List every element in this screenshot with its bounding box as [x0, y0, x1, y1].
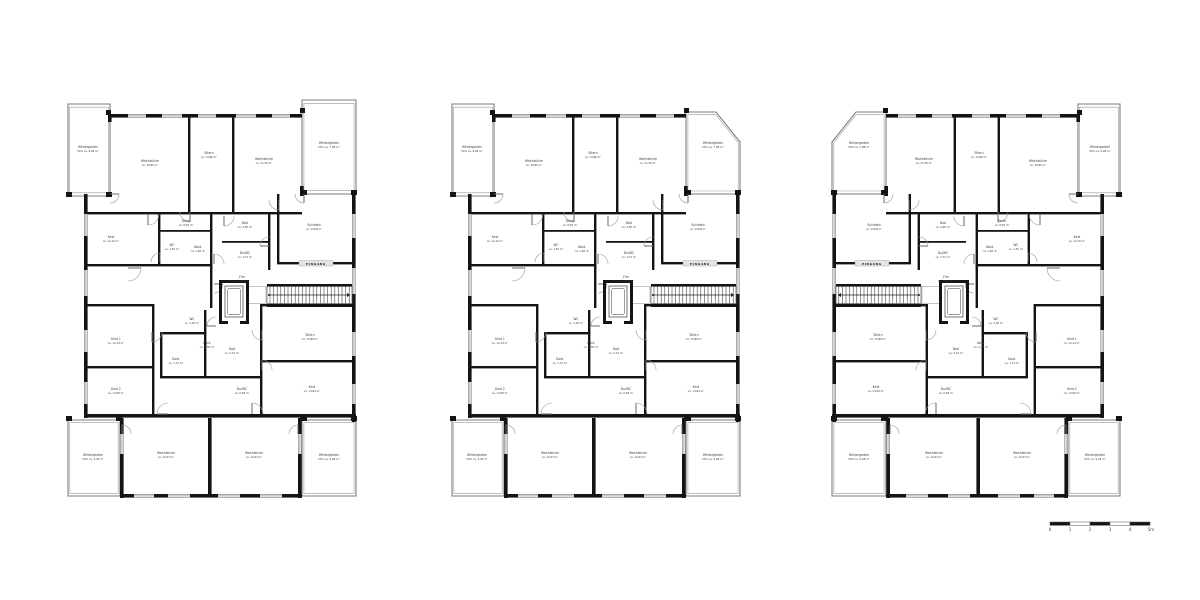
svg-text:Schlafen: Schlafen	[867, 223, 880, 227]
svg-text:Gard.: Gard.	[172, 357, 180, 361]
room-label-abstell-1: Abst. ca. 1,98 m²	[191, 245, 206, 253]
floor-plan-middle: Wintergarten 50% ca. 9,68 m² Wohnküche c…	[448, 98, 744, 502]
svg-text:Du/WC: Du/WC	[941, 387, 952, 391]
svg-text:Kind 1: Kind 1	[1067, 337, 1077, 341]
svg-text:ca. 7,13 m²: ca. 7,13 m²	[169, 361, 184, 365]
svg-text:Du/WC: Du/WC	[240, 251, 251, 255]
svg-text:50% ca. 7,88 m²: 50% ca. 7,88 m²	[848, 145, 869, 149]
svg-text:ca. 1,98 m²: ca. 1,98 m²	[575, 249, 590, 253]
room-label-dusche-wc-1: Du/WC ca. 3,74 m²	[936, 251, 951, 259]
floor-plan-middle-drawing: Wintergarten 50% ca. 9,68 m² Wohnküche c…	[448, 98, 744, 502]
svg-text:Du/WC: Du/WC	[624, 251, 635, 255]
room-label-diele-1: Diele ca. 8,95 m²	[995, 219, 1010, 227]
svg-text:Eltern: Eltern	[588, 151, 597, 155]
svg-text:50% ca. 9,68 m²: 50% ca. 9,68 m²	[77, 149, 98, 153]
svg-text:Abst.: Abst.	[986, 245, 994, 249]
svg-text:ca. 24,33 m²: ca. 24,33 m²	[542, 455, 558, 459]
room-label-dusche-wc-1: Du/WC ca. 3,74 m²	[238, 251, 253, 259]
svg-text:Kind: Kind	[1074, 235, 1081, 239]
svg-text:Wintergarten: Wintergarten	[462, 145, 482, 149]
svg-text:ca. 14,06 m²: ca. 14,06 m²	[306, 227, 322, 231]
svg-text:Wintergarten: Wintergarten	[319, 141, 339, 145]
svg-text:50% ca. 9,26 m²: 50% ca. 9,26 m²	[1084, 457, 1105, 461]
svg-text:Gard.: Gard.	[556, 357, 564, 361]
entrance-label: EINGANG	[855, 261, 889, 267]
svg-text:ca. 12,14 m²: ca. 12,14 m²	[108, 341, 124, 345]
svg-text:ca. 3,74 m²: ca. 3,74 m²	[622, 255, 637, 259]
room-label-dusche-wc-2: Du/WC ca. 6,28 m²	[619, 387, 634, 395]
room-label-eltern-2: Eltern ca. 13,88 m²	[686, 333, 702, 341]
svg-text:Wohnküche: Wohnküche	[255, 157, 273, 161]
room-label-kind-1: Kind 1 ca. 12,14 m²	[492, 337, 508, 345]
svg-text:3: 3	[1109, 527, 1112, 532]
svg-text:ca. 13,68 m²: ca. 13,68 m²	[492, 391, 508, 395]
svg-text:50% ca. 9,68 m²: 50% ca. 9,68 m²	[1089, 149, 1110, 153]
room-label-kind-1: Kind 1 ca. 12,14 m²	[108, 337, 124, 345]
room-label-bad-2: Bad ca. 5,23 m²	[609, 347, 624, 355]
svg-text:Wintergarten: Wintergarten	[467, 453, 487, 457]
svg-text:ca. 13,88 m²: ca. 13,88 m²	[870, 337, 886, 341]
svg-text:Bad: Bad	[229, 347, 235, 351]
room-label-eltern-2: Eltern ca. 13,88 m²	[870, 333, 886, 341]
svg-text:ca. 21,36 m²: ca. 21,36 m²	[640, 161, 656, 165]
svg-text:ca. 8,95 m²: ca. 8,95 m²	[179, 223, 194, 227]
room-label-bad-1: Bad ca. 4,85 m²	[936, 221, 951, 229]
room-label-wohnkueche-1: Wohnküche ca. 20,86 m²	[1029, 159, 1047, 167]
svg-text:Bad: Bad	[626, 221, 632, 225]
room-label-kind-l: Kind ca. 12,16 m²	[103, 235, 119, 243]
room-label-schlafen: Schlafen ca. 14,06 m²	[866, 223, 882, 231]
svg-text:Wohnküche: Wohnküche	[141, 159, 159, 163]
svg-text:WC: WC	[553, 243, 558, 247]
room-label-wohnzimmer: Wohnküche ca. 21,36 m²	[255, 157, 273, 165]
room-label-wc-2: WC ca. 2,28 m²	[569, 317, 584, 325]
svg-text:ca. 3,74 m²: ca. 3,74 m²	[238, 255, 253, 259]
svg-text:ca. 2,38 m²: ca. 2,38 m²	[584, 345, 599, 349]
svg-text:Abst.: Abst.	[203, 341, 211, 345]
room-label-wohnkueche-3: Wohnküche ca. 24,92 m²	[629, 451, 647, 459]
svg-text:Kind: Kind	[492, 235, 499, 239]
svg-text:Kind 2: Kind 2	[1067, 387, 1077, 391]
svg-text:Du/WC: Du/WC	[938, 251, 949, 255]
scale-bar-segments	[1050, 522, 1150, 525]
svg-text:Eltern: Eltern	[974, 151, 983, 155]
svg-text:ca. 14,86 m²: ca. 14,86 m²	[971, 155, 987, 159]
room-label-kind-l: Kind ca. 12,16 m²	[487, 235, 503, 243]
room-label-kind-3: Kind ca. 14,84 m²	[304, 385, 320, 393]
room-label-garderobe: Gard. ca. 7,13 m²	[1005, 357, 1020, 365]
room-label-eltern: Eltern ca. 14,86 m²	[971, 151, 987, 159]
svg-text:ca. 14,06 m²: ca. 14,06 m²	[690, 227, 706, 231]
floor-plan-right-drawing: Wintergarten 50% ca. 9,68 m² Wohnküche c…	[828, 98, 1124, 502]
floor-plan-sheet: { "page": { "background_color": "#ffffff…	[0, 0, 1200, 600]
svg-text:ca. 21,36 m²: ca. 21,36 m²	[916, 161, 932, 165]
svg-text:Kind: Kind	[309, 385, 316, 389]
room-label-wohnkueche-2: Wohnküche ca. 24,33 m²	[1013, 451, 1031, 459]
room-label-wohnkueche-2: Wohnküche ca. 24,33 m²	[157, 451, 175, 459]
room-label-bad-1: Bad ca. 4,85 m²	[238, 221, 253, 229]
svg-text:Wintergarten: Wintergarten	[703, 453, 723, 457]
svg-text:ca. 14,86 m²: ca. 14,86 m²	[585, 155, 601, 159]
svg-text:50% ca. 9,68 m²: 50% ca. 9,68 m²	[461, 149, 482, 153]
room-label-wohnkueche-2: Wohnküche ca. 24,33 m²	[541, 451, 559, 459]
room-label-wohnkueche-3: Wohnküche ca. 24,92 m²	[245, 451, 263, 459]
svg-text:Gard.: Gard.	[1008, 357, 1016, 361]
svg-text:ca. 12,16 m²: ca. 12,16 m²	[103, 239, 119, 243]
room-label-diele-1: Diele ca. 8,95 m²	[563, 219, 578, 227]
room-label-kind-3: Kind ca. 14,84 m²	[688, 385, 704, 393]
room-label-wohnkueche-3: Wohnküche ca. 24,92 m²	[925, 451, 943, 459]
svg-text:50% ca. 9,26 m²: 50% ca. 9,26 m²	[82, 457, 103, 461]
svg-text:ca. 14,84 m²: ca. 14,84 m²	[304, 389, 320, 393]
room-label-eltern: Eltern ca. 14,86 m²	[201, 151, 217, 159]
svg-text:ca. 2,38 m²: ca. 2,38 m²	[200, 345, 215, 349]
svg-text:Wintergarten: Wintergarten	[1090, 145, 1110, 149]
svg-text:WC: WC	[169, 243, 174, 247]
svg-text:ca. 7,13 m²: ca. 7,13 m²	[553, 361, 568, 365]
scale-bar: 0 1 2 3 4 5m	[1048, 516, 1156, 538]
svg-text:Du/WC: Du/WC	[237, 387, 248, 391]
entrance-label: EINGANG	[683, 261, 717, 267]
svg-text:ca. 3,74 m²: ca. 3,74 m²	[936, 255, 951, 259]
svg-text:ca. 14,84 m²: ca. 14,84 m²	[688, 389, 704, 393]
svg-text:ca. 20,02 m²: ca. 20,02 m²	[618, 279, 634, 283]
svg-text:ca. 2,38 m²: ca. 2,38 m²	[974, 345, 989, 349]
svg-text:50% ca. 7,88 m²: 50% ca. 7,88 m²	[318, 145, 339, 149]
room-label-kind-3: Kind ca. 14,84 m²	[868, 385, 884, 393]
svg-text:Wintergarten: Wintergarten	[319, 453, 339, 457]
svg-text:Diele: Diele	[182, 219, 190, 223]
svg-text:Wohnküche: Wohnküche	[1029, 159, 1047, 163]
svg-text:Abst.: Abst.	[194, 245, 202, 249]
room-label-schlafen: Schlafen ca. 14,06 m²	[306, 223, 322, 231]
room-label-kind-2: Kind 2 ca. 13,68 m²	[108, 387, 124, 395]
room-label-wc-1: WC ca. 1,55 m²	[1009, 243, 1024, 251]
svg-text:Kind: Kind	[693, 385, 700, 389]
svg-text:4: 4	[1129, 527, 1132, 532]
svg-text:ca. 8,95 m²: ca. 8,95 m²	[995, 223, 1010, 227]
svg-text:Kind 2: Kind 2	[495, 387, 505, 391]
svg-text:Wohnküche: Wohnküche	[245, 451, 263, 455]
svg-text:Bad: Bad	[242, 221, 248, 225]
svg-text:Wohnküche: Wohnküche	[541, 451, 559, 455]
svg-text:Diele: Diele	[998, 219, 1006, 223]
room-label-eltern-2: Eltern ca. 13,88 m²	[302, 333, 318, 341]
svg-text:ca. 24,92 m²: ca. 24,92 m²	[630, 455, 646, 459]
svg-text:0: 0	[1049, 527, 1052, 532]
svg-text:Eltern: Eltern	[873, 333, 882, 337]
svg-text:ca. 14,84 m²: ca. 14,84 m²	[868, 389, 884, 393]
svg-text:Schlafen: Schlafen	[307, 223, 320, 227]
svg-text:ca. 5,23 m²: ca. 5,23 m²	[225, 351, 240, 355]
svg-text:ca. 1,55 m²: ca. 1,55 m²	[165, 247, 180, 251]
svg-text:Wohnküche: Wohnküche	[525, 159, 543, 163]
svg-text:ca. 6,28 m²: ca. 6,28 m²	[235, 391, 250, 395]
svg-text:WC: WC	[573, 317, 578, 321]
svg-text:ca. 20,02 m²: ca. 20,02 m²	[938, 279, 954, 283]
svg-text:WC: WC	[189, 317, 194, 321]
svg-text:ca. 5,23 m²: ca. 5,23 m²	[949, 351, 964, 355]
svg-text:ca. 2,28 m²: ca. 2,28 m²	[569, 321, 584, 325]
room-label-wohnkueche-1: Wohnküche ca. 20,86 m²	[525, 159, 543, 167]
svg-text:ca. 1,98 m²: ca. 1,98 m²	[191, 249, 206, 253]
svg-text:Wintergarten: Wintergarten	[1085, 453, 1105, 457]
svg-text:Eltern: Eltern	[305, 333, 314, 337]
room-label-flur: Flur ca. 20,02 m²	[234, 275, 250, 283]
svg-text:Eltern: Eltern	[204, 151, 213, 155]
room-label-kind-2: Kind 2 ca. 13,68 m²	[1064, 387, 1080, 395]
svg-text:Wohnküche: Wohnküche	[157, 451, 175, 455]
room-label-schlafen: Schlafen ca. 14,06 m²	[690, 223, 706, 231]
svg-text:50% ca. 9,26 m²: 50% ca. 9,26 m²	[466, 457, 487, 461]
room-label-abstell-2: Abst. ca. 2,38 m²	[974, 341, 989, 349]
room-label-garderobe: Gard. ca. 7,13 m²	[169, 357, 184, 365]
svg-text:Kind 1: Kind 1	[495, 337, 505, 341]
svg-text:Wintergarten: Wintergarten	[849, 141, 869, 145]
svg-text:ca. 7,13 m²: ca. 7,13 m²	[1005, 361, 1020, 365]
svg-text:ca. 24,92 m²: ca. 24,92 m²	[246, 455, 262, 459]
svg-text:ca. 1,55 m²: ca. 1,55 m²	[1009, 247, 1024, 251]
svg-text:ca. 12,16 m²: ca. 12,16 m²	[1069, 239, 1085, 243]
svg-text:ca. 20,02 m²: ca. 20,02 m²	[234, 279, 250, 283]
svg-text:1: 1	[1069, 527, 1072, 532]
svg-text:Kind: Kind	[873, 385, 880, 389]
room-label-wc-1: WC ca. 1,55 m²	[549, 243, 564, 251]
svg-text:ca. 5,23 m²: ca. 5,23 m²	[609, 351, 624, 355]
svg-text:ca. 13,68 m²: ca. 13,68 m²	[1064, 391, 1080, 395]
svg-text:ca. 4,85 m²: ca. 4,85 m²	[622, 225, 637, 229]
floor-plan-right: Wintergarten 50% ca. 9,68 m² Wohnküche c…	[828, 98, 1124, 502]
room-label-wohnzimmer: Wohnküche ca. 21,36 m²	[639, 157, 657, 165]
svg-text:Kind 2: Kind 2	[111, 387, 121, 391]
svg-text:Bad: Bad	[953, 347, 959, 351]
svg-text:Abst.: Abst.	[977, 341, 985, 345]
room-label-eltern: Eltern ca. 14,86 m²	[585, 151, 601, 159]
svg-text:2: 2	[1089, 527, 1092, 532]
svg-text:Eltern: Eltern	[689, 333, 698, 337]
room-label-wohnzimmer: Wohnküche ca. 21,36 m²	[915, 157, 933, 165]
svg-text:Wintergarten: Wintergarten	[78, 145, 98, 149]
svg-text:ca. 21,36 m²: ca. 21,36 m²	[256, 161, 272, 165]
svg-text:Bad: Bad	[613, 347, 619, 351]
svg-text:ca. 6,28 m²: ca. 6,28 m²	[619, 391, 634, 395]
room-label-diele-1: Diele ca. 8,95 m²	[179, 219, 194, 227]
scale-bar-ticks: 0 1 2 3 4 5m	[1049, 527, 1155, 532]
room-label-flur: Flur ca. 20,02 m²	[618, 275, 634, 283]
svg-text:Wohnküche: Wohnküche	[1013, 451, 1031, 455]
room-label-kind-l: Kind ca. 12,16 m²	[1069, 235, 1085, 243]
entrance-label: EINGANG	[299, 261, 333, 267]
floor-plan-left: Wintergarten 50% ca. 9,68 m² Wohnküche c…	[64, 98, 360, 502]
room-label-wc-1: WC ca. 1,55 m²	[165, 243, 180, 251]
svg-text:ca. 2,28 m²: ca. 2,28 m²	[989, 321, 1004, 325]
svg-text:ca. 13,88 m²: ca. 13,88 m²	[686, 337, 702, 341]
svg-text:Kind 1: Kind 1	[111, 337, 121, 341]
svg-text:ca. 1,98 m²: ca. 1,98 m²	[983, 249, 998, 253]
room-label-wohnkueche-1: Wohnküche ca. 20,86 m²	[141, 159, 159, 167]
room-label-kind-2: Kind 2 ca. 13,68 m²	[492, 387, 508, 395]
svg-text:WC: WC	[1013, 243, 1018, 247]
svg-text:5m: 5m	[1148, 527, 1155, 532]
svg-text:Wohnküche: Wohnküche	[925, 451, 943, 455]
svg-text:50% ca. 9,68 m²: 50% ca. 9,68 m²	[318, 457, 339, 461]
svg-text:ca. 1,55 m²: ca. 1,55 m²	[549, 247, 564, 251]
room-label-dusche-wc-2: Du/WC ca. 6,28 m²	[235, 387, 250, 395]
room-label-wc-2: WC ca. 2,28 m²	[185, 317, 200, 325]
svg-text:ca. 6,28 m²: ca. 6,28 m²	[939, 391, 954, 395]
svg-text:Schlafen: Schlafen	[691, 223, 704, 227]
room-label-abstell-2: Abst. ca. 2,38 m²	[200, 341, 215, 349]
svg-text:Wohnküche: Wohnküche	[629, 451, 647, 455]
svg-text:Wintergarten: Wintergarten	[83, 453, 103, 457]
svg-text:ca. 14,86 m²: ca. 14,86 m²	[201, 155, 217, 159]
svg-text:ca. 13,68 m²: ca. 13,68 m²	[108, 391, 124, 395]
svg-text:ca. 24,92 m²: ca. 24,92 m²	[926, 455, 942, 459]
room-label-bad-1: Bad ca. 4,85 m²	[622, 221, 637, 229]
room-label-kind-1: Kind 1 ca. 12,14 m²	[1064, 337, 1080, 345]
svg-text:Wohnküche: Wohnküche	[915, 157, 933, 161]
svg-text:ca. 20,86 m²: ca. 20,86 m²	[142, 163, 158, 167]
svg-text:Diele: Diele	[566, 219, 574, 223]
svg-text:EINGANG: EINGANG	[306, 262, 326, 266]
svg-text:EINGANG: EINGANG	[690, 262, 710, 266]
svg-text:ca. 8,95 m²: ca. 8,95 m²	[563, 223, 578, 227]
svg-text:Wintergarten: Wintergarten	[703, 141, 723, 145]
svg-text:ca. 12,14 m²: ca. 12,14 m²	[1064, 341, 1080, 345]
svg-text:ca. 14,06 m²: ca. 14,06 m²	[866, 227, 882, 231]
floor-plan-left-drawing: Wintergarten 50% ca. 9,68 m² Wohnküche c…	[64, 98, 360, 502]
room-label-dusche-wc-1: Du/WC ca. 3,74 m²	[622, 251, 637, 259]
svg-text:Flur: Flur	[943, 275, 950, 279]
svg-text:ca. 12,14 m²: ca. 12,14 m²	[492, 341, 508, 345]
room-label-abstell-1: Abst. ca. 1,98 m²	[575, 245, 590, 253]
svg-text:ca. 20,86 m²: ca. 20,86 m²	[526, 163, 542, 167]
room-label-bad-2: Bad ca. 5,23 m²	[949, 347, 964, 355]
svg-text:Abst.: Abst.	[587, 341, 595, 345]
svg-text:ca. 2,28 m²: ca. 2,28 m²	[185, 321, 200, 325]
room-label-wc-2: WC ca. 2,28 m²	[989, 317, 1004, 325]
svg-text:Wohnküche: Wohnküche	[639, 157, 657, 161]
room-label-bad-2: Bad ca. 5,23 m²	[225, 347, 240, 355]
svg-text:ca. 4,85 m²: ca. 4,85 m²	[936, 225, 951, 229]
svg-text:50% ca. 9,68 m²: 50% ca. 9,68 m²	[702, 457, 723, 461]
svg-text:ca. 24,33 m²: ca. 24,33 m²	[158, 455, 174, 459]
svg-text:Flur: Flur	[623, 275, 630, 279]
room-label-flur: Flur ca. 20,02 m²	[938, 275, 954, 283]
svg-text:50% ca. 9,68 m²: 50% ca. 9,68 m²	[848, 457, 869, 461]
svg-text:ca. 13,88 m²: ca. 13,88 m²	[302, 337, 318, 341]
svg-text:Flur: Flur	[239, 275, 246, 279]
room-label-garderobe: Gard. ca. 7,13 m²	[553, 357, 568, 365]
svg-text:Abst.: Abst.	[578, 245, 586, 249]
svg-text:Wintergarten: Wintergarten	[849, 453, 869, 457]
room-label-dusche-wc-2: Du/WC ca. 6,28 m²	[939, 387, 954, 395]
svg-text:ca. 4,85 m²: ca. 4,85 m²	[238, 225, 253, 229]
svg-text:ca. 20,86 m²: ca. 20,86 m²	[1030, 163, 1046, 167]
svg-text:EINGANG: EINGANG	[862, 262, 882, 266]
svg-text:50% ca. 7,88 m²: 50% ca. 7,88 m²	[702, 145, 723, 149]
svg-text:ca. 24,33 m²: ca. 24,33 m²	[1014, 455, 1030, 459]
svg-text:ca. 12,16 m²: ca. 12,16 m²	[487, 239, 503, 243]
svg-text:WC: WC	[993, 317, 998, 321]
room-label-abstell-1: Abst. ca. 1,98 m²	[983, 245, 998, 253]
room-label-abstell-2: Abst. ca. 2,38 m²	[584, 341, 599, 349]
svg-text:Du/WC: Du/WC	[621, 387, 632, 391]
svg-text:Kind: Kind	[108, 235, 115, 239]
svg-text:Bad: Bad	[940, 221, 946, 225]
